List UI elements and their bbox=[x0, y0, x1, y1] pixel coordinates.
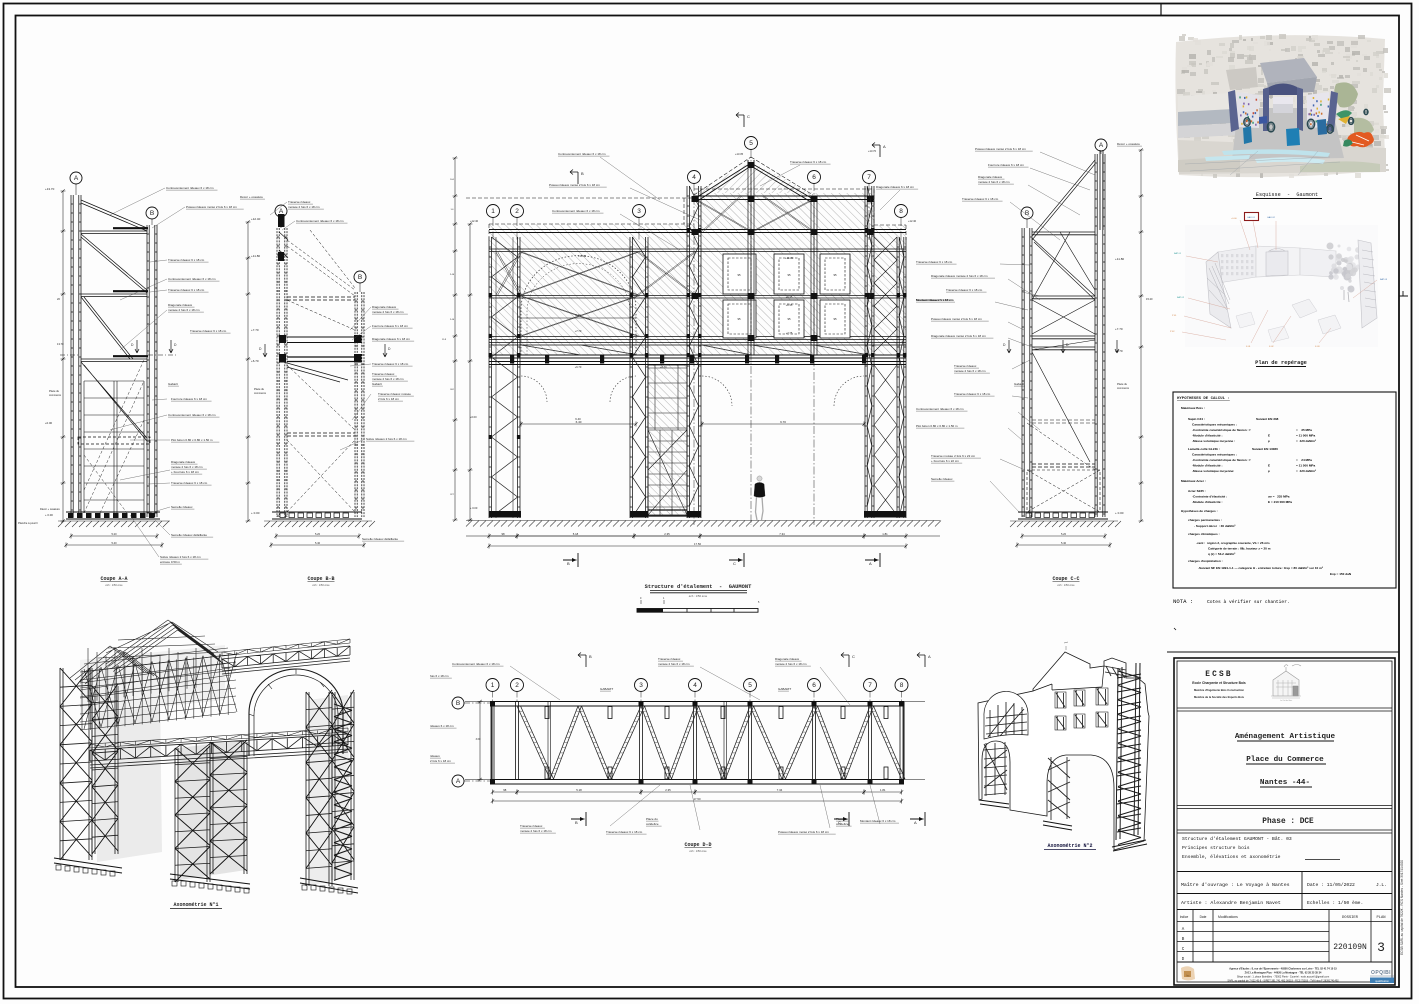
svg-text:6.40: 6.40 bbox=[575, 417, 581, 421]
svg-text:ECSB SARL au capital de 7622€: ECSB SARL au capital de 7622€ - RCS Nant… bbox=[1400, 860, 1404, 955]
svg-text:95: 95 bbox=[737, 317, 741, 321]
svg-text:commerce: commerce bbox=[254, 391, 267, 395]
svg-text:B: B bbox=[575, 820, 578, 825]
svg-text:Principes structure bois: Principes structure bois bbox=[1182, 845, 1250, 851]
svg-text:Traverse rideaux: Traverse rideaux bbox=[520, 824, 543, 828]
svg-text:Diagonale rideaux moisée 2 foi: Diagonale rideaux moisée 2 fois 6 x 18 c… bbox=[931, 274, 988, 278]
svg-text:Poteau rideaux moisé 2 fois 6: Poteau rideaux moisé 2 fois 6 x 18 cm bbox=[931, 317, 982, 321]
svg-text:Plot béton 0.80 x 0.80 x 1.50: Plot béton 0.80 x 0.80 x 1.50 m bbox=[171, 438, 213, 442]
svg-text:Place du: Place du bbox=[646, 817, 658, 821]
svg-text:Siège social : 1, place Boield: Siège social : 1, place Boieldieu - 7500… bbox=[1237, 976, 1329, 979]
svg-text:Coupe C-C: Coupe C-C bbox=[1052, 576, 1079, 582]
svg-text:S 01: S 01 bbox=[1246, 346, 1251, 348]
svg-text:B: B bbox=[567, 561, 570, 566]
svg-text:Semelle rideaux: Semelle rideaux bbox=[931, 477, 953, 481]
svg-text:-Masse volumique moyenne:: -Masse volumique moyenne: bbox=[1192, 469, 1234, 473]
svg-text:220109N: 220109N bbox=[1333, 943, 1367, 952]
svg-text:Nantes -44-: Nantes -44- bbox=[1260, 779, 1310, 787]
svg-text:3: 3 bbox=[639, 682, 643, 689]
svg-text:Plan de repérage: Plan de repérage bbox=[1255, 360, 1307, 366]
svg-text:-Contrainte caractéristique de: -Contrainte caractéristique de flexion :… bbox=[1192, 428, 1251, 432]
svg-text:charges d'exploitation :: charges d'exploitation : bbox=[1188, 559, 1223, 563]
svg-text:Cotes à vérifier sur chantier.: Cotes à vérifier sur chantier. bbox=[1207, 599, 1290, 605]
svg-text:5: 5 bbox=[749, 140, 753, 147]
svg-text:colidefice: colidefice bbox=[646, 822, 659, 826]
svg-text:Indice: Indice bbox=[1180, 915, 1189, 919]
svg-text:Contreventement rideaux 6 x 18: Contreventement rideaux 6 x 18 cm bbox=[916, 407, 964, 411]
svg-text:-Contrainte d'élasticité :: -Contrainte d'élasticité : bbox=[1192, 495, 1227, 499]
svg-text:Décor + ossature: Décor + ossature bbox=[1117, 142, 1140, 146]
svg-text:Agence d'Etudes : 8, rue de l': Agence d'Etudes : 8, rue de l'Eperonneri… bbox=[1229, 968, 1337, 971]
svg-text:Semelle rideaux défaillante: Semelle rideaux défaillante bbox=[171, 533, 207, 537]
svg-text:Traverse rideaux 6 x 18 cm: Traverse rideaux 6 x 18 cm bbox=[954, 392, 991, 396]
svg-text:Matériaux Bois :: Matériaux Bois : bbox=[1181, 406, 1205, 410]
svg-text:-Masse volumique moyenne :: -Masse volumique moyenne : bbox=[1192, 439, 1235, 443]
svg-text:moisée 2 fois 6 x 18 cm: moisée 2 fois 6 x 18 cm bbox=[171, 465, 203, 469]
svg-text:moisée 2 fois 6 x 18 cm: moisée 2 fois 6 x 18 cm bbox=[168, 308, 200, 312]
svg-text:éch : 1/50 ème: éch : 1/50 ème bbox=[312, 583, 330, 587]
svg-text:B: B bbox=[358, 274, 362, 281]
svg-text:Traverse rideaux: Traverse rideaux bbox=[372, 372, 395, 376]
svg-text:Date : 11/05/2022: Date : 11/05/2022 bbox=[1307, 882, 1355, 888]
svg-text:Diagonale rideaux moisé 2 fois: Diagonale rideaux moisé 2 fois 6 x 18 cm bbox=[931, 334, 986, 338]
svg-text:σe = 235 MPa: σe = 235 MPa bbox=[1268, 495, 1290, 499]
svg-text:E: E bbox=[1268, 434, 1270, 438]
svg-text:5.18: 5.18 bbox=[576, 788, 582, 792]
svg-text:8: 8 bbox=[900, 682, 904, 689]
svg-text:A: A bbox=[279, 208, 284, 215]
svg-text:Place du: Place du bbox=[1117, 382, 1128, 386]
svg-text:Sapin C24 :: Sapin C24 : bbox=[1188, 417, 1205, 421]
svg-text:Exp = 150 daN: Exp = 150 daN bbox=[1330, 572, 1352, 576]
svg-text:2: 2 bbox=[515, 208, 519, 215]
svg-text:1.81: 1.81 bbox=[880, 788, 886, 792]
svg-text:+13.70: +13.70 bbox=[868, 149, 877, 153]
svg-text:Traverse rideaux 6 x 18 cm: Traverse rideaux 6 x 18 cm bbox=[171, 481, 208, 485]
svg-text:ρ: ρ bbox=[1268, 439, 1270, 443]
svg-text:BAT 03: BAT 03 bbox=[1380, 278, 1388, 281]
svg-text:+13.35: +13.35 bbox=[735, 152, 744, 156]
svg-text:Structure d'étalement GAUMONT: Structure d'étalement GAUMONT - Bât. 03 bbox=[1182, 836, 1292, 842]
svg-text:Modifications: Modifications bbox=[1218, 915, 1238, 919]
svg-text:BAT 02: BAT 02 bbox=[1177, 296, 1185, 299]
svg-text:Traverse rideaux 6 x 18 cm: Traverse rideaux 6 x 18 cm bbox=[962, 197, 999, 201]
svg-text:B: B bbox=[589, 654, 592, 659]
svg-text:5.18: 5.18 bbox=[573, 532, 579, 536]
svg-text:Solive rideaux 2 fois 6 x 18 c: Solive rideaux 2 fois 6 x 18 cm bbox=[366, 437, 407, 441]
svg-text:5.20: 5.20 bbox=[1061, 532, 1067, 536]
svg-text:Fourrure rideaux 6 x 18 cm: Fourrure rideaux 6 x 18 cm bbox=[372, 324, 409, 328]
svg-text:B: B bbox=[456, 700, 460, 707]
svg-text:5.40: 5.40 bbox=[315, 541, 321, 545]
svg-text:Phase : DCE: Phase : DCE bbox=[1262, 818, 1314, 826]
svg-text:DOSSIER: DOSSIER bbox=[1342, 916, 1359, 920]
svg-text:7: 7 bbox=[867, 174, 871, 181]
svg-text:moisée 2 fois 6 x 18 cm: moisée 2 fois 6 x 18 cm bbox=[520, 829, 552, 833]
svg-text:Maître d'ouvrage : Le Voyage à: Maître d'ouvrage : Le Voyage à Nantes bbox=[1181, 882, 1290, 888]
svg-text:= 24 MPa: = 24 MPa bbox=[1296, 458, 1312, 462]
svg-text:-Module d'élasticité :: -Module d'élasticité : bbox=[1192, 434, 1222, 438]
svg-text:+ 0.00: + 0.00 bbox=[1115, 511, 1124, 515]
svg-text:= 420 daN/m³: = 420 daN/m³ bbox=[1296, 439, 1316, 443]
svg-text:1.81: 1.81 bbox=[882, 532, 888, 536]
svg-text:Axonométrie N°2: Axonométrie N°2 bbox=[1047, 843, 1092, 849]
svg-text:5.40: 5.40 bbox=[111, 541, 117, 545]
svg-text:+13.70: +13.70 bbox=[45, 187, 55, 191]
svg-text:7: 7 bbox=[868, 682, 872, 689]
svg-text:3.60: 3.60 bbox=[476, 738, 481, 741]
svg-text:Membre d'Ingénierie Bois Const: Membre d'Ingénierie Bois Construction bbox=[1194, 688, 1244, 692]
svg-text:La Cité du Bois: La Cité du Bois bbox=[1280, 699, 1292, 702]
svg-text:98: 98 bbox=[503, 788, 507, 792]
svg-text:Contreventement rideaux 6 x 18: Contreventement rideaux 6 x 18 cm bbox=[452, 662, 500, 666]
svg-text:moisée 2 fois 6 x 18 cm: moisée 2 fois 6 x 18 cm bbox=[954, 369, 986, 373]
svg-text:B: B bbox=[581, 171, 584, 176]
svg-text:ZAC La Montagne Plus - 44620 L: ZAC La Montagne Plus - 44620 La Montagne… bbox=[1245, 972, 1322, 975]
svg-text:charges permanentes :: charges permanentes : bbox=[1188, 518, 1222, 522]
svg-text:+7.70: +7.70 bbox=[251, 328, 259, 332]
svg-text:+ 0.00: + 0.00 bbox=[251, 511, 260, 515]
svg-text:Gabarit: Gabarit bbox=[372, 382, 382, 386]
svg-text:rideaux: rideaux bbox=[430, 754, 440, 758]
svg-text:+6.70: +6.70 bbox=[660, 365, 667, 369]
svg-text:Suivant EN 14080: Suivant EN 14080 bbox=[1252, 447, 1278, 451]
svg-text:+11.80: +11.80 bbox=[251, 254, 260, 258]
svg-text:Contreventement rideaux 6 x 18: Contreventement rideaux 6 x 18 cm bbox=[168, 413, 216, 417]
svg-text:+9.35: +9.35 bbox=[786, 295, 793, 299]
svg-text:9.70: 9.70 bbox=[780, 420, 786, 424]
svg-text:Contreventement rideaux 6 x 18: Contreventement rideaux 6 x 18 cm bbox=[552, 209, 600, 213]
svg-text:Décor + ossature: Décor + ossature bbox=[40, 507, 60, 511]
svg-text:17.50: 17.50 bbox=[694, 797, 701, 801]
svg-text:Plot béton 0.80 x 0.80 x 1.50: Plot béton 0.80 x 0.80 x 1.50 m bbox=[916, 424, 958, 428]
svg-text:Semelle rideaux: Semelle rideaux bbox=[171, 505, 193, 509]
svg-text:-Module d'élasticité :: -Module d'élasticité : bbox=[1192, 464, 1222, 468]
svg-text:HYPOTHESES DE CALCUL :: HYPOTHESES DE CALCUL : bbox=[1177, 397, 1230, 401]
svg-text:2.35: 2.35 bbox=[665, 788, 671, 792]
svg-text:+ Fourrure 6 x 18 cm: + Fourrure 6 x 18 cm bbox=[171, 470, 199, 474]
svg-text:Suivant EN 338: Suivant EN 338 bbox=[1256, 417, 1279, 421]
svg-text:2.35: 2.35 bbox=[664, 532, 670, 536]
svg-text:Contreventement rideaux 6 x 18: Contreventement rideaux 6 x 18 cm bbox=[168, 277, 216, 281]
svg-text:Artiste : Alexandre Benjamin N: Artiste : Alexandre Benjamin Navet bbox=[1181, 900, 1281, 906]
svg-text:Contreventement rideaux 6 x 18: Contreventement rideaux 6 x 18 cm bbox=[296, 219, 344, 223]
svg-text:Traverse rideaux 6 x 18 cm: Traverse rideaux 6 x 18 cm bbox=[606, 830, 643, 834]
svg-text:-vent : région 2, orographie: -vent : région 2, orographie courante, V… bbox=[1196, 541, 1270, 545]
svg-text:Esquisse - Gaumont: Esquisse - Gaumont bbox=[1256, 192, 1318, 198]
svg-text:Diagonale rideaux: Diagonale rideaux bbox=[171, 460, 196, 464]
svg-text:moisée 2 fois 6 x 18 cm: moisée 2 fois 6 x 18 cm bbox=[372, 377, 404, 381]
svg-text:Diagonale rideaux: Diagonale rideaux bbox=[978, 175, 1003, 179]
svg-text:-Suivant NF EN 1991-1-1 — caté: -Suivant NF EN 1991-1-1 — catégorie H - … bbox=[1198, 566, 1323, 570]
svg-text:A: A bbox=[869, 561, 872, 566]
svg-text:E: E bbox=[1268, 464, 1270, 468]
svg-text:+ 0.00: + 0.00 bbox=[470, 506, 478, 510]
svg-text:+8.35: +8.35 bbox=[786, 303, 793, 307]
svg-text:= 420 daN/m³: = 420 daN/m³ bbox=[1296, 469, 1316, 473]
svg-text:Montant rideaux 6 x 18 cm: Montant rideaux 6 x 18 cm bbox=[860, 819, 896, 823]
svg-text:Fourrure rideaux 6 x 18 cm: Fourrure rideaux 6 x 18 cm bbox=[988, 163, 1025, 167]
svg-text:Traverse rideaux 6 x 18 cm: Traverse rideaux 6 x 18 cm bbox=[790, 160, 827, 164]
svg-text:entraxe 0.50 m: entraxe 0.50 m bbox=[160, 560, 181, 564]
svg-text:Ensemble, élévations et axonom: Ensemble, élévations et axonométrie bbox=[1182, 854, 1281, 860]
svg-text:S 02: S 02 bbox=[1269, 346, 1274, 348]
svg-text:C: C bbox=[747, 114, 750, 119]
svg-text:+6.70: +6.70 bbox=[251, 359, 259, 363]
svg-text:95: 95 bbox=[787, 317, 791, 321]
svg-text:Montant rideaux 6 x 18 cm: Montant rideaux 6 x 18 cm bbox=[916, 298, 954, 302]
svg-text:Caractéristiques mécaniques :: Caractéristiques mécaniques : bbox=[1192, 423, 1237, 427]
svg-text:5.20: 5.20 bbox=[315, 532, 321, 536]
svg-text:Place du Commerce: Place du Commerce bbox=[1246, 756, 1324, 764]
svg-text:Aménagement Artistique: Aménagement Artistique bbox=[1235, 733, 1336, 741]
svg-text:Hypothèses de charges :: Hypothèses de charges : bbox=[1181, 509, 1218, 513]
svg-text:3: 3 bbox=[637, 208, 641, 215]
svg-text:+ 0.00: + 0.00 bbox=[45, 513, 53, 517]
svg-text:C: C bbox=[852, 654, 855, 659]
svg-text:Traverse rideaux 6 x 18 cm: Traverse rideaux 6 x 18 cm bbox=[916, 260, 953, 264]
svg-text:5.20: 5.20 bbox=[111, 532, 117, 536]
svg-text:+0.00: +0.00 bbox=[45, 421, 53, 425]
svg-text:GABARIT: GABARIT bbox=[778, 687, 791, 691]
svg-text:+12.40: +12.40 bbox=[251, 217, 261, 221]
svg-text:2 fois 6 x 18 cm: 2 fois 6 x 18 cm bbox=[378, 397, 400, 401]
svg-text:13.70: 13.70 bbox=[57, 342, 64, 346]
svg-text:Gabarit: Gabarit bbox=[168, 382, 178, 386]
svg-text:Place du: Place du bbox=[254, 387, 265, 391]
svg-text:E = 210 000 MPa: E = 210 000 MPa bbox=[1268, 500, 1292, 504]
svg-text:Caractéristiques mécaniques :: Caractéristiques mécaniques : bbox=[1192, 453, 1237, 457]
svg-text:A: A bbox=[914, 820, 917, 825]
svg-text:Traverse rideaux moisée: Traverse rideaux moisée bbox=[378, 392, 411, 396]
svg-text:4: 4 bbox=[692, 174, 696, 181]
svg-text:+10.35: +10.35 bbox=[578, 254, 587, 258]
svg-text:moisée 2 fois 6 x 18 cm: moisée 2 fois 6 x 18 cm bbox=[288, 205, 320, 209]
svg-text:commerce: commerce bbox=[1117, 386, 1130, 390]
svg-text:3: 3 bbox=[1377, 940, 1385, 955]
svg-text:Poteau rideaux moisé 2 fois 6: Poteau rideaux moisé 2 fois 6 x 18 cm bbox=[778, 830, 829, 834]
svg-text:Diagonale rideaux 6 x 18 cm: Diagonale rideaux 6 x 18 cm bbox=[876, 185, 915, 189]
svg-text:éch : 1/50 ème: éch : 1/50 ème bbox=[689, 849, 707, 853]
svg-text:C: C bbox=[733, 561, 736, 566]
svg-text:Semelle rideaux défaillante: Semelle rideaux défaillante bbox=[362, 537, 398, 541]
svg-text:+11.35: +11.35 bbox=[785, 256, 793, 260]
svg-text:Contreventement rideaux 6 x 18: Contreventement rideaux 6 x 18 cm bbox=[166, 186, 214, 190]
svg-text:95: 95 bbox=[833, 317, 837, 321]
svg-text:q (z) = 53.2 daN/m²: q (z) = 53.2 daN/m² bbox=[1208, 552, 1235, 556]
svg-text:Traverse rideaux 6 x 18 cm: Traverse rideaux 6 x 18 cm bbox=[168, 258, 205, 262]
svg-text:Place du: Place du bbox=[836, 817, 848, 821]
svg-text:charges climatiques :: charges climatiques : bbox=[1188, 532, 1220, 536]
svg-text:J.L.: J.L. bbox=[1376, 882, 1387, 888]
svg-text:+12.40: +12.40 bbox=[908, 219, 917, 223]
svg-text:moisée 2 fois 6 x 18 cm: moisée 2 fois 6 x 18 cm bbox=[978, 180, 1010, 184]
svg-text:Traverse rideaux 6 x 18 cm: Traverse rideaux 6 x 18 cm bbox=[190, 329, 227, 333]
svg-text:S 03: S 03 bbox=[1315, 346, 1320, 348]
svg-text:Matériaux Acier :: Matériaux Acier : bbox=[1181, 479, 1206, 483]
svg-text:2 fois 6 x 18 cm: 2 fois 6 x 18 cm bbox=[430, 759, 452, 763]
svg-text:Traverse rideaux 6 x 18 cm: Traverse rideaux 6 x 18 cm bbox=[372, 362, 409, 366]
svg-text:4: 4 bbox=[693, 682, 697, 689]
svg-text:A: A bbox=[928, 654, 931, 659]
svg-text:Coupe B-B: Coupe B-B bbox=[307, 576, 334, 582]
svg-text:A: A bbox=[74, 175, 79, 182]
svg-text:+7.75: +7.75 bbox=[786, 331, 793, 335]
svg-text:Poteau rideaux moisé 2 fois 6: Poteau rideaux moisé 2 fois 6 x 18 cm bbox=[186, 205, 237, 209]
svg-text:qualification: qualification bbox=[1375, 979, 1389, 983]
svg-text:Poteau rideaux moisé 2 fois 6: Poteau rideaux moisé 2 fois 6 x 18 cm bbox=[549, 183, 600, 187]
svg-text:17.50: 17.50 bbox=[694, 542, 701, 546]
svg-text:Traverse rideaux: Traverse rideaux bbox=[658, 657, 681, 661]
svg-text:GAU 01: GAU 01 bbox=[1247, 216, 1256, 219]
svg-text:Traverse rideaux 6 x 18 cm: Traverse rideaux 6 x 18 cm bbox=[168, 288, 205, 292]
svg-text:Diagonale rideaux: Diagonale rideaux bbox=[168, 303, 193, 307]
svg-text:ρ: ρ bbox=[1268, 469, 1270, 473]
svg-text:Traverse rideaux: Traverse rideaux bbox=[954, 364, 977, 368]
svg-text:Acier S235 :: Acier S235 : bbox=[1188, 489, 1206, 493]
svg-text:Traverse rideaux: Traverse rideaux bbox=[288, 200, 311, 204]
svg-text:6.40: 6.40 bbox=[575, 313, 581, 317]
svg-text:+11.80: +11.80 bbox=[1115, 257, 1124, 261]
svg-text:Contreventement rideaux 6 x 18: Contreventement rideaux 6 x 18 cm bbox=[558, 152, 606, 156]
svg-text:P 01: P 01 bbox=[1172, 315, 1177, 317]
svg-text:+0.00: +0.00 bbox=[470, 415, 477, 419]
svg-text:- Support décor : 30 daN/m²: - Support décor : 30 daN/m² bbox=[1194, 524, 1235, 528]
svg-text:Coupe A-A: Coupe A-A bbox=[100, 576, 127, 582]
svg-text:2: 2 bbox=[515, 682, 519, 689]
svg-text:ECSB: ECSB bbox=[1205, 671, 1233, 679]
svg-text:Décor + ossature: Décor + ossature bbox=[240, 195, 263, 199]
svg-text:moisée 2 fois 6 x 18 cm: moisée 2 fois 6 x 18 cm bbox=[372, 310, 404, 314]
svg-text:6: 6 bbox=[812, 682, 816, 689]
svg-text:+6.70: +6.70 bbox=[575, 365, 582, 369]
svg-text:colidefice: colidefice bbox=[836, 822, 849, 826]
svg-text:Structure d'étalement - GAUM: Structure d'étalement - GAUMONT bbox=[645, 584, 753, 590]
svg-text:Membre de la Société des Exper: Membre de la Société des Experts Bois bbox=[1194, 695, 1245, 699]
svg-text:95: 95 bbox=[833, 273, 837, 277]
svg-text:Fourrure rideaux 6 x 18 cm: Fourrure rideaux 6 x 18 cm bbox=[171, 397, 208, 401]
svg-text:1: 1 bbox=[491, 208, 495, 215]
svg-text:+7.70: +7.70 bbox=[575, 329, 582, 333]
svg-text:commerce: commerce bbox=[49, 393, 62, 397]
svg-text:Poteau rideaux moisé 2 fois 6: Poteau rideaux moisé 2 fois 6 x 18 cm bbox=[975, 147, 1026, 151]
svg-text:8: 8 bbox=[899, 208, 903, 215]
svg-text:Solive rideaux 2 fois 6 x 18 c: Solive rideaux 2 fois 6 x 18 cm bbox=[160, 555, 201, 559]
svg-text:Traverse rideaux 6 x 18 cm: Traverse rideaux 6 x 18 cm bbox=[946, 288, 983, 292]
svg-text:éch : 1/50 ème: éch : 1/50 ème bbox=[689, 594, 708, 598]
svg-text:moisée 2 fois 6 x 18 cm: moisée 2 fois 6 x 18 cm bbox=[658, 662, 690, 666]
svg-text:= 35 MPa: = 35 MPa bbox=[1296, 428, 1312, 432]
svg-text:GAU 02: GAU 02 bbox=[1267, 216, 1276, 219]
svg-text:moisée 2 fois 6 x 18 cm: moisée 2 fois 6 x 18 cm bbox=[775, 662, 807, 666]
svg-text:A: A bbox=[456, 778, 461, 785]
svg-text:BAT 01: BAT 01 bbox=[1174, 252, 1182, 255]
svg-text:OPQIBI: OPQIBI bbox=[1371, 970, 1391, 976]
svg-text:6: 6 bbox=[812, 174, 816, 181]
svg-text:Lamellé-collé GL24h :: Lamellé-collé GL24h : bbox=[1188, 447, 1220, 451]
svg-text:7.34: 7.34 bbox=[779, 532, 785, 536]
svg-text:+0.00: +0.00 bbox=[1231, 218, 1237, 220]
svg-text:éch : 1/50 ème: éch : 1/50 ème bbox=[105, 583, 123, 587]
svg-text:Date: Date bbox=[1200, 915, 1207, 919]
svg-text:Catégorie de terrain : IIIb, h: Catégorie de terrain : IIIb, hauteur z =… bbox=[1208, 547, 1271, 551]
svg-text:A: A bbox=[883, 144, 886, 149]
svg-text:PLAN: PLAN bbox=[1376, 916, 1385, 920]
svg-text:NOTA :: NOTA : bbox=[1173, 598, 1193, 605]
svg-text:15.20: 15.20 bbox=[1146, 297, 1153, 301]
svg-text:5: 5 bbox=[748, 682, 752, 689]
svg-text:rideaux 6 x 18 cm: rideaux 6 x 18 cm bbox=[430, 724, 454, 728]
svg-text:éch : 1/50 ème: éch : 1/50 ème bbox=[1057, 583, 1075, 587]
svg-text:Echelles : 1/50 ème.: Echelles : 1/50 ème. bbox=[1307, 900, 1363, 906]
svg-text:95: 95 bbox=[737, 273, 741, 277]
svg-text:= 11 000 MPa: = 11 000 MPa bbox=[1296, 434, 1315, 438]
svg-text:Traverse moisée 2 fois 6 x 22: Traverse moisée 2 fois 6 x 22 cm bbox=[931, 454, 976, 458]
svg-text:+7.70: +7.70 bbox=[1115, 327, 1123, 331]
svg-text:A: A bbox=[1099, 142, 1104, 149]
svg-text:Place du: Place du bbox=[49, 389, 60, 393]
svg-text:-Module d'élasticité :: -Module d'élasticité : bbox=[1192, 500, 1222, 504]
svg-text:B: B bbox=[150, 210, 154, 217]
svg-text:95: 95 bbox=[787, 273, 791, 277]
svg-text:-Contrainte caractéristique de: -Contrainte caractéristique de flexion :… bbox=[1192, 458, 1251, 462]
svg-text:Diagonale rideaux: Diagonale rideaux bbox=[372, 305, 397, 309]
svg-text:+ Fourrure 6 x 22 cm: + Fourrure 6 x 22 cm bbox=[931, 459, 959, 463]
svg-text:7.34: 7.34 bbox=[777, 788, 783, 792]
svg-text:1: 1 bbox=[491, 682, 495, 689]
svg-text:Axonométrie N°1: Axonométrie N°1 bbox=[173, 902, 218, 908]
svg-text:98: 98 bbox=[501, 532, 505, 536]
svg-text:Coupe D-D: Coupe D-D bbox=[684, 842, 711, 848]
svg-text:GABARIT: GABARIT bbox=[600, 687, 613, 691]
svg-text:Diagonale rideaux 6 x 18 cm: Diagonale rideaux 6 x 18 cm bbox=[372, 337, 411, 341]
svg-text:= 11 500 MPa: = 11 500 MPa bbox=[1296, 464, 1315, 468]
svg-text:5.40: 5.40 bbox=[1061, 541, 1067, 545]
svg-text:SARL au capital de 7 622,45 €: SARL au capital de 7 622,45 € - SIRET 39… bbox=[1227, 980, 1339, 983]
svg-text:Ecole Charpente et Structure B: Ecole Charpente et Structure Bois bbox=[1192, 681, 1246, 685]
svg-text:Diagonale rideaux: Diagonale rideaux bbox=[775, 657, 800, 661]
svg-text:P 02: P 02 bbox=[1170, 331, 1175, 333]
svg-text:fois 6 x 18 cm: fois 6 x 18 cm bbox=[430, 674, 449, 678]
svg-text:Gabarit: Gabarit bbox=[1014, 382, 1024, 386]
svg-text:Planche à pourrir: Planche à pourrir bbox=[18, 521, 38, 525]
